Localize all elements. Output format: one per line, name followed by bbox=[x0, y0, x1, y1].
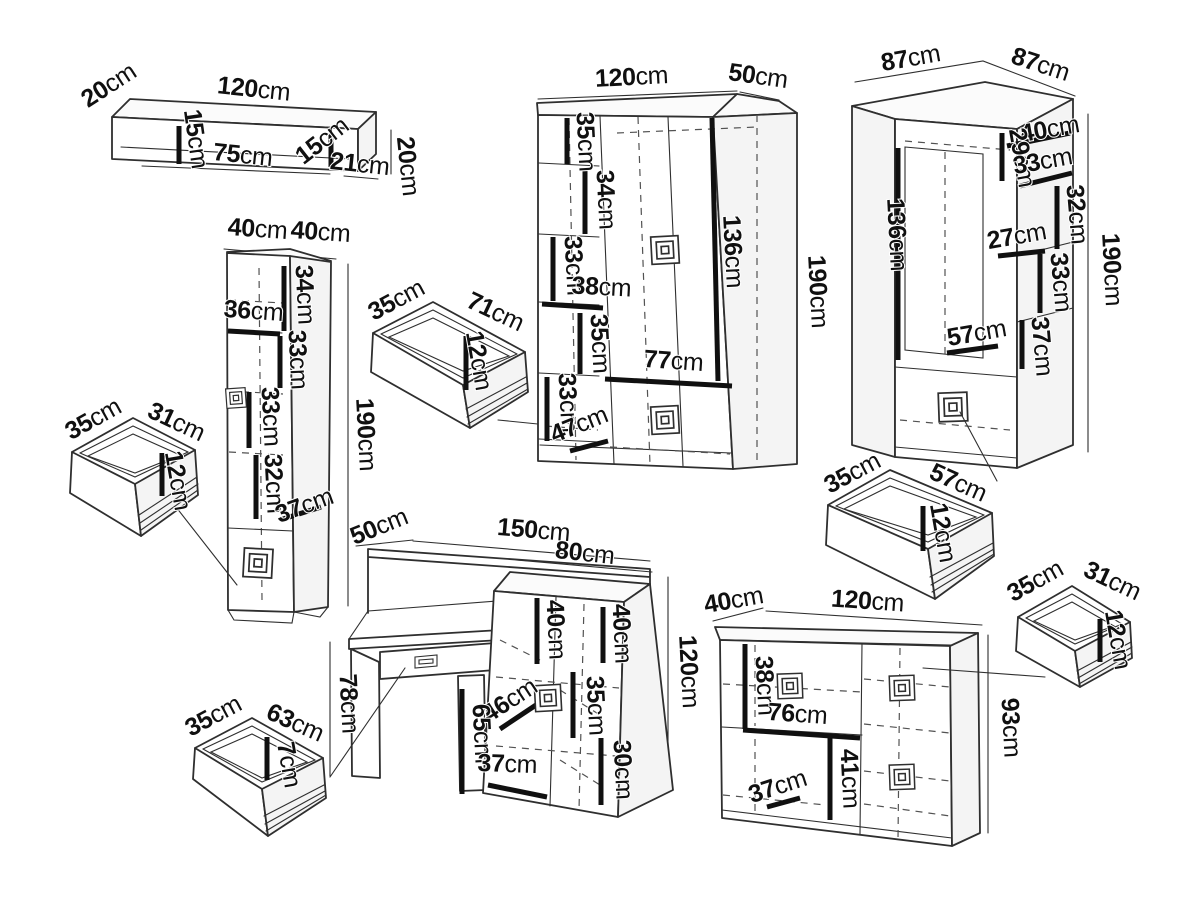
dim-label: 33cm bbox=[1044, 251, 1077, 313]
dim-label: 75cm bbox=[212, 138, 274, 172]
dim-label: 93cm bbox=[995, 697, 1026, 758]
dim-label: 87cm bbox=[879, 39, 943, 77]
dim-label: 35cm bbox=[570, 111, 601, 172]
dim-label: 40cm bbox=[606, 603, 637, 664]
corner-wardrobe: 87cm 87cm 40cm 29cm 33cm 32cm 27cm 33cm … bbox=[852, 39, 1128, 481]
dim-label: 77cm bbox=[643, 345, 704, 377]
handle-icon bbox=[243, 548, 273, 578]
dim-label: 36cm bbox=[223, 295, 284, 327]
dim-label: 190cm bbox=[350, 397, 382, 471]
tall-cabinet: 40cm 40cm 34cm 36cm 33cm 33cm 32cm 37cm … bbox=[176, 213, 382, 623]
dim-label: 40cm bbox=[290, 216, 351, 248]
furniture-dimension-diagram: 20cm 120cm 15cm 75cm 15cm 21cm 20cm 40cm… bbox=[0, 0, 1200, 900]
dim-label: 34cm bbox=[289, 264, 320, 325]
dim-label: 38cm bbox=[571, 271, 632, 302]
drawer-right: 35cm 57cm 12cm bbox=[819, 447, 994, 599]
wall-shelf: 20cm 120cm 15cm 75cm 15cm 21cm 20cm bbox=[76, 57, 425, 197]
dim-label: 50cm bbox=[727, 58, 790, 94]
drawer-bottom-right: 35cm 31cm 12cm bbox=[1002, 554, 1145, 687]
dim-label: 35cm bbox=[60, 392, 126, 445]
handle-icon bbox=[651, 236, 680, 265]
dim-label: 32cm bbox=[1060, 183, 1093, 245]
dim-label: 35cm bbox=[584, 313, 615, 374]
dim-label: 71cm bbox=[462, 286, 528, 337]
dim-label: 35cm bbox=[580, 675, 611, 736]
drawer-bottom-left: 35cm 63cm 7cm bbox=[180, 690, 328, 836]
drawer-small-left: 35cm 31cm 12cm bbox=[60, 392, 209, 536]
dim-label: 35cm bbox=[1002, 554, 1068, 607]
diagram-canvas: 20cm 120cm 15cm 75cm 15cm 21cm 20cm 40cm… bbox=[0, 0, 1200, 900]
dim-label: 190cm bbox=[802, 254, 834, 328]
handle-icon bbox=[777, 673, 803, 699]
dim-label: 78cm bbox=[333, 673, 364, 734]
dim-label: 30cm bbox=[607, 739, 638, 800]
handle-icon bbox=[889, 764, 915, 790]
dim-label: 190cm bbox=[1096, 232, 1128, 306]
dim-label: 120cm bbox=[216, 71, 292, 106]
dim-label: 40cm bbox=[540, 599, 571, 660]
dim-label: 37cm bbox=[477, 749, 537, 779]
handle-icon bbox=[651, 406, 680, 435]
wardrobe: 120cm 50cm 35cm 34cm 33cm 38cm 35cm 33cm… bbox=[537, 58, 834, 469]
dim-label: 136cm bbox=[717, 214, 749, 288]
dim-label: 87cm bbox=[1008, 42, 1073, 87]
dresser: 40cm 120cm 38cm 76cm 41cm 37cm 93cm bbox=[702, 581, 1045, 846]
dim-label: 33cm bbox=[282, 329, 313, 390]
dim-label: 41cm bbox=[834, 748, 865, 809]
dim-label: 40cm bbox=[227, 213, 288, 245]
dim-label: 31cm bbox=[1079, 555, 1145, 606]
dim-label: 37cm bbox=[1025, 315, 1058, 377]
dim-label: 120cm bbox=[830, 585, 905, 618]
handle-icon bbox=[889, 675, 915, 701]
dim-label: 120cm bbox=[673, 634, 705, 708]
dim-label: 33cm bbox=[255, 386, 286, 447]
dim-label: 40cm bbox=[702, 581, 766, 619]
dim-label: 35cm bbox=[180, 690, 246, 743]
handle-icon bbox=[226, 388, 247, 409]
dim-label: 34cm bbox=[590, 169, 621, 230]
dim-label: 80cm bbox=[554, 536, 616, 570]
dim-label: 21cm bbox=[329, 147, 391, 181]
dim-label: 20cm bbox=[391, 135, 425, 197]
dim-label: 35cm bbox=[363, 274, 429, 327]
dim-label: 136cm bbox=[881, 197, 913, 271]
desk: 50cm 150cm 80cm 40cm 40cm 120cm 35cm 46c… bbox=[330, 502, 705, 817]
dim-label: 120cm bbox=[594, 61, 668, 93]
dim-label: 76cm bbox=[767, 698, 828, 730]
